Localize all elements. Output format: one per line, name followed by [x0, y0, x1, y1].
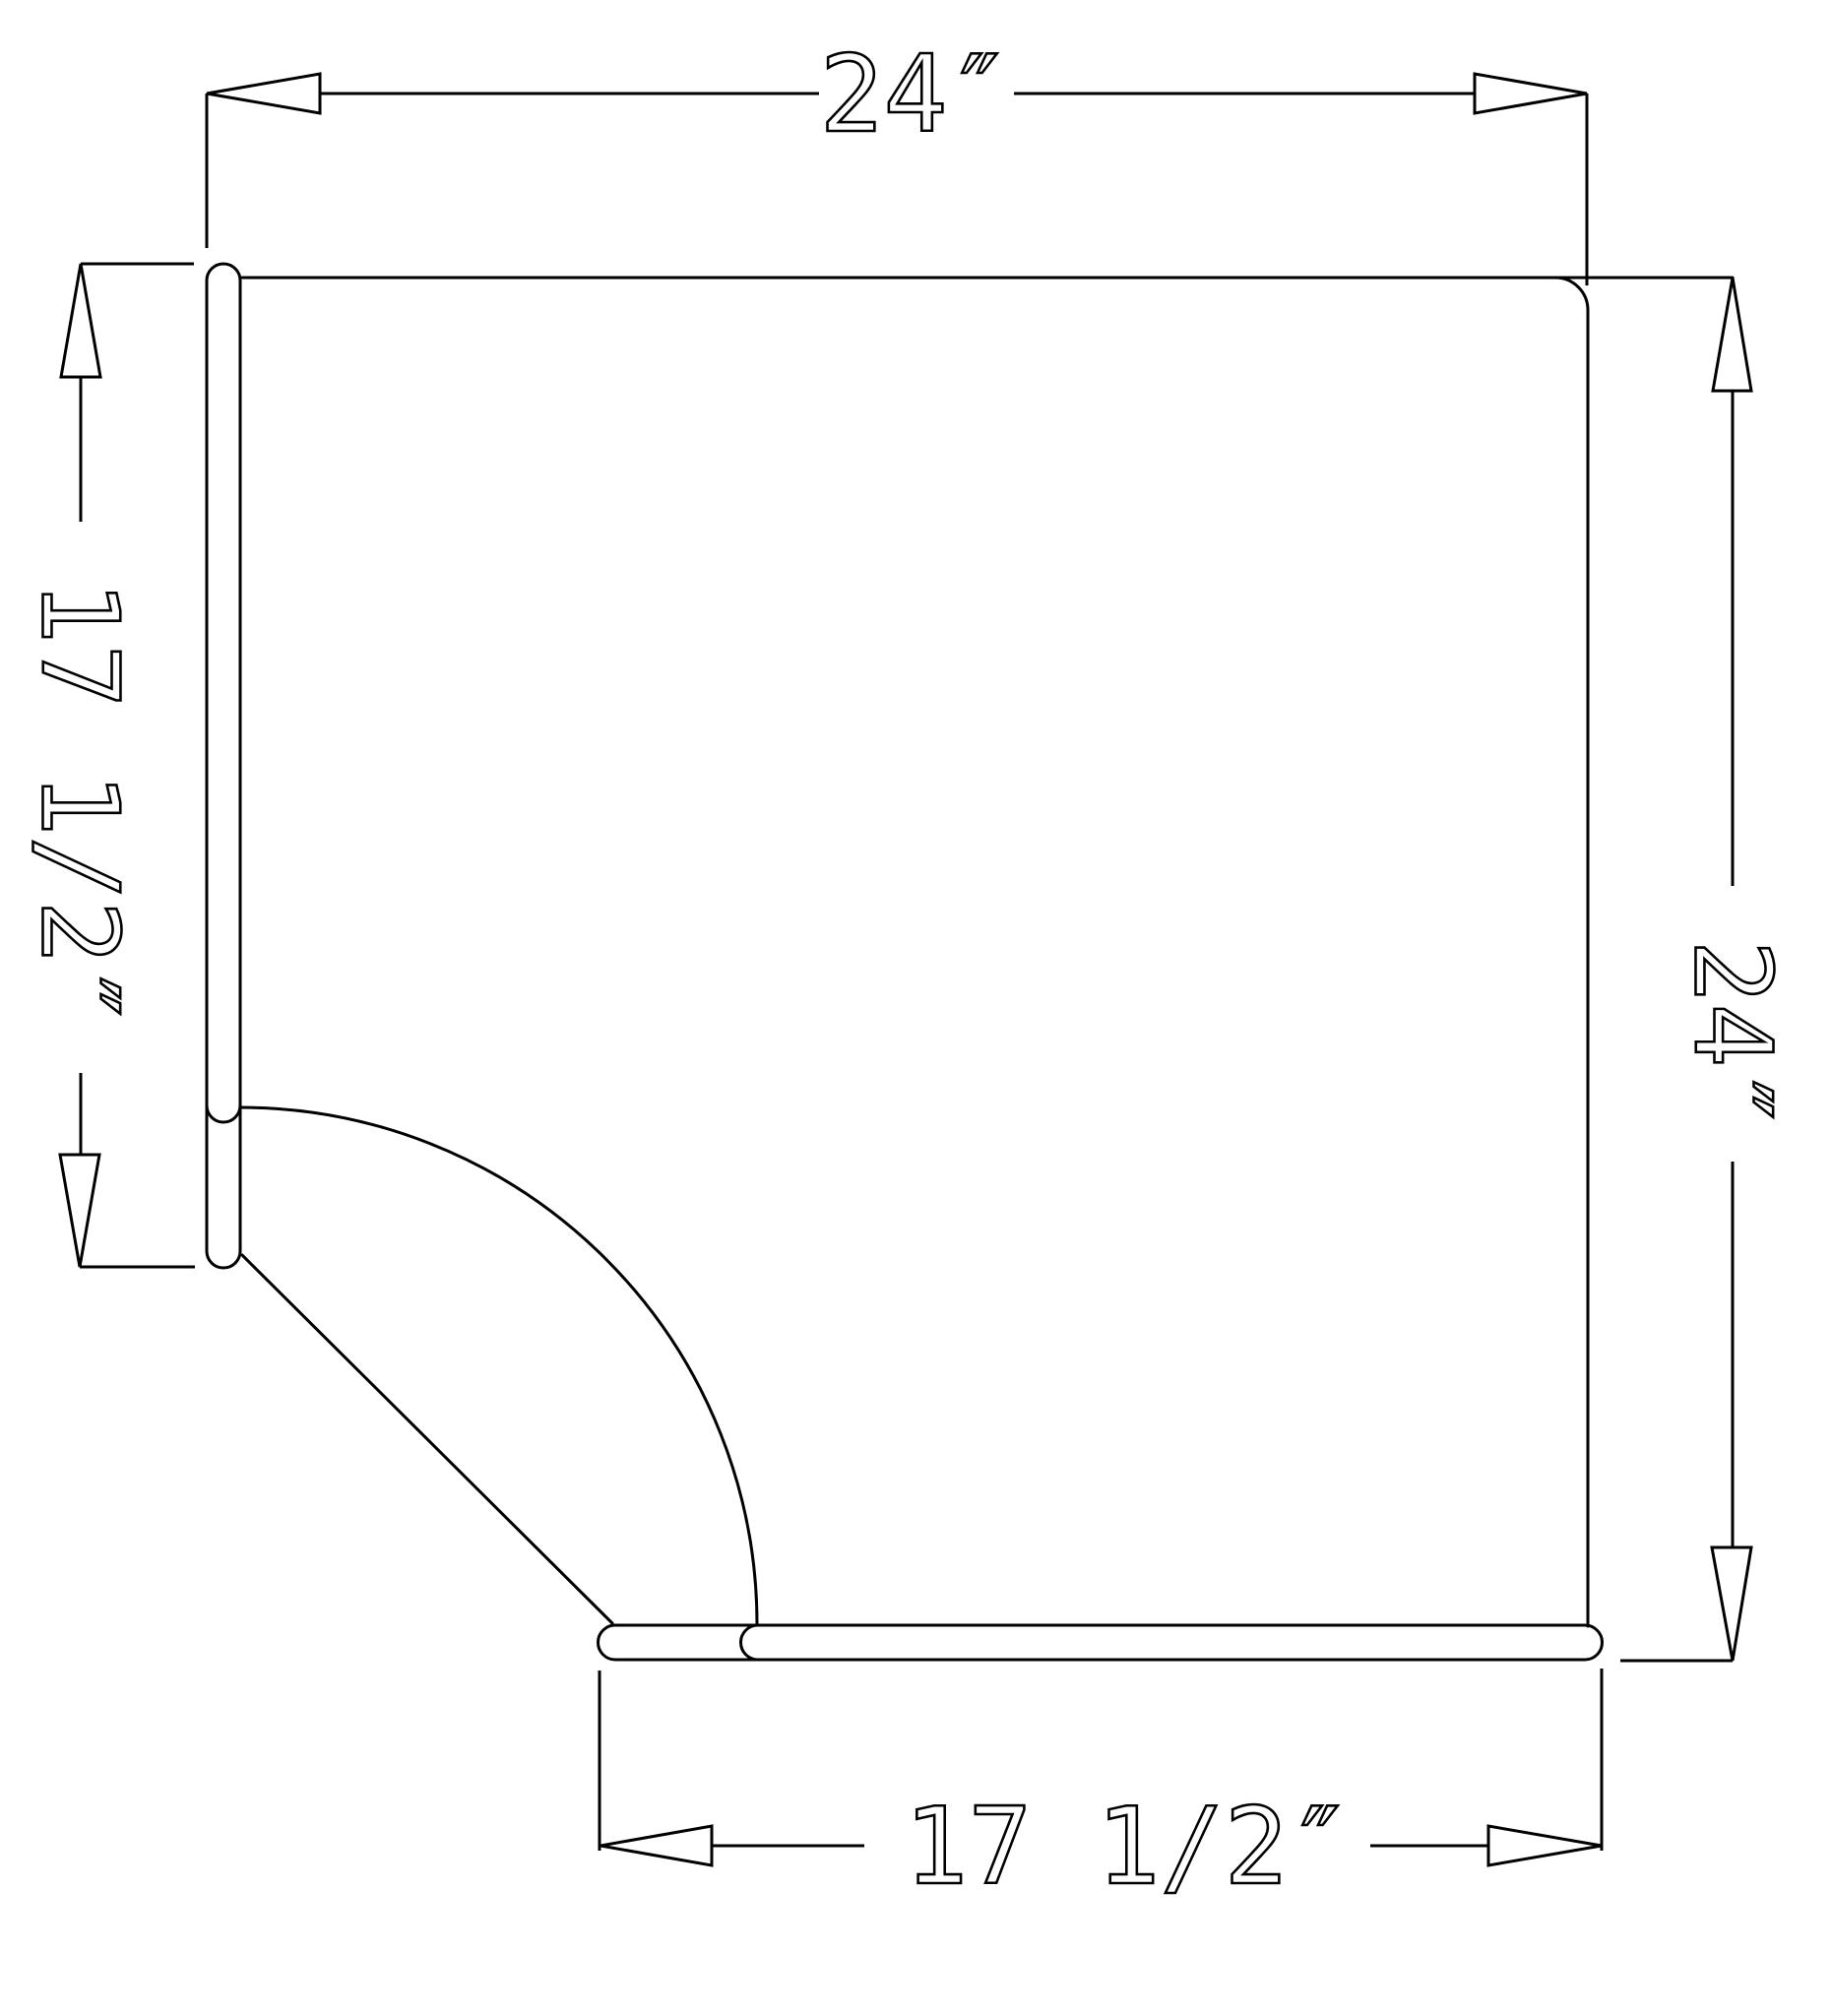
drawing-sheet: 24″ 17 1/2″ 24″	[0, 0, 1831, 2016]
top-dimension: 24″	[207, 33, 1587, 285]
part-concave-arc	[240, 1107, 757, 1624]
arrowhead-right-icon	[1475, 74, 1587, 113]
bottom-edge-band-joint	[741, 1625, 759, 1660]
top-dim-label: 24″	[819, 33, 1011, 157]
left-edge-band-joint	[207, 1105, 240, 1122]
left-dimension: 17 1/2″	[18, 264, 196, 1267]
left-edge-band	[207, 264, 240, 1268]
part-outline	[240, 278, 1733, 1626]
bottom-dim-label: 17 1/2″	[904, 1786, 1352, 1909]
technical-drawing-canvas: 24″ 17 1/2″ 24″	[0, 0, 1831, 2016]
right-dim-label: 24″	[1671, 939, 1794, 1131]
right-dimension: 24″	[1620, 278, 1794, 1661]
bottom-edge-band	[599, 1625, 1603, 1660]
arrowhead-down-icon	[60, 1155, 99, 1267]
bottom-dimension: 17 1/2″	[600, 1669, 1602, 1909]
arrowhead-up-icon	[1713, 278, 1751, 391]
left-dim-label: 17 1/2″	[18, 580, 141, 1028]
arrowhead-left-icon	[600, 1826, 712, 1865]
arrowhead-down-icon	[1712, 1547, 1751, 1661]
part-top-right-corner	[1555, 278, 1588, 310]
arrowhead-right-icon	[1488, 1826, 1602, 1865]
arrowhead-up-icon	[61, 264, 100, 377]
part-chamfer-line	[242, 1255, 612, 1623]
arrowhead-left-icon	[207, 74, 320, 113]
bottom-edge-band-capsule	[599, 1625, 1603, 1660]
